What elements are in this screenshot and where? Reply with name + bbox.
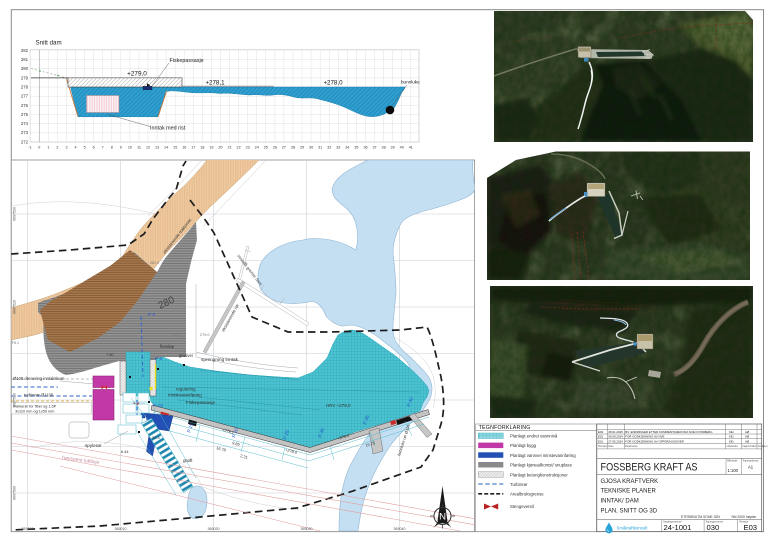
svg-text:NN 2000 høyder: NN 2000 høyder bbox=[732, 515, 758, 519]
svg-text:8: 8 bbox=[111, 146, 113, 150]
svg-text:31: 31 bbox=[318, 146, 322, 150]
svg-text:40: 40 bbox=[400, 146, 404, 150]
svg-text:Godkjent: Godkjent bbox=[758, 445, 768, 448]
svg-text:3: 3 bbox=[65, 146, 67, 150]
svg-text:A1: A1 bbox=[748, 465, 754, 470]
svg-text:Ø100 drenering inntakskum: Ø100 drenering inntakskum bbox=[13, 376, 65, 381]
svg-text:spylerør: spylerør bbox=[85, 443, 102, 448]
svg-text:INNTAK/ DAM: INNTAK/ DAM bbox=[601, 499, 639, 505]
svg-text:030: 030 bbox=[707, 523, 720, 532]
svg-text:F8,1: F8,1 bbox=[12, 341, 19, 345]
svg-text:17: 17 bbox=[191, 146, 195, 150]
svg-text:4: 4 bbox=[74, 146, 76, 150]
svg-text:281.9: 281.9 bbox=[150, 261, 159, 265]
svg-text:6697520: 6697520 bbox=[13, 300, 17, 314]
svg-text:14: 14 bbox=[164, 146, 168, 150]
svg-text:15: 15 bbox=[173, 146, 177, 150]
svg-text:grøft: grøft bbox=[183, 458, 193, 463]
svg-text:281: 281 bbox=[21, 57, 29, 62]
svg-text:HRV +278,0: HRV +278,0 bbox=[326, 403, 351, 408]
svg-text:Beskrivelse: Beskrivelse bbox=[625, 445, 638, 448]
svg-text:21: 21 bbox=[228, 146, 232, 150]
svg-text:12: 12 bbox=[146, 146, 150, 150]
svg-text:274: 274 bbox=[21, 121, 29, 126]
svg-text:275: 275 bbox=[21, 112, 29, 117]
svg-text:39: 39 bbox=[391, 146, 395, 150]
svg-text:35: 35 bbox=[354, 146, 358, 150]
svg-text:+278,0: +278,0 bbox=[323, 80, 343, 87]
svg-text:5: 5 bbox=[84, 146, 86, 150]
svg-text:37: 37 bbox=[372, 146, 376, 150]
svg-text:282: 282 bbox=[21, 48, 29, 53]
svg-text:276: 276 bbox=[21, 103, 29, 108]
svg-text:6697500: 6697500 bbox=[13, 486, 17, 500]
svg-text:Utarbeidet: Utarbeidet bbox=[727, 445, 738, 448]
svg-text:34: 34 bbox=[345, 146, 349, 150]
svg-text:KEi: KEi bbox=[729, 435, 734, 439]
svg-text:Tegningsformat: Tegningsformat bbox=[743, 460, 759, 463]
svg-text:E02: E02 bbox=[598, 435, 604, 439]
svg-text:E03: E03 bbox=[598, 430, 604, 434]
svg-text:-1: -1 bbox=[29, 146, 32, 150]
svg-text:38: 38 bbox=[382, 146, 386, 150]
svg-text:N: N bbox=[439, 512, 446, 523]
svg-text:23: 23 bbox=[246, 146, 250, 150]
svg-text:278: 278 bbox=[21, 85, 29, 90]
svg-text:Snitt dam: Snitt dam bbox=[36, 40, 62, 47]
svg-text:279.0: 279.0 bbox=[200, 333, 210, 337]
svg-text:9: 9 bbox=[120, 146, 122, 150]
svg-text:26: 26 bbox=[273, 146, 277, 150]
svg-text:Planlagt vannvei minstevannfør: Planlagt vannvei minstevannføring bbox=[510, 453, 576, 458]
svg-text:grusvei: grusvei bbox=[179, 353, 193, 358]
svg-text:06.09.2024: 06.09.2024 bbox=[608, 435, 623, 439]
svg-text:24-1001: 24-1001 bbox=[664, 523, 692, 532]
svg-text:18: 18 bbox=[200, 146, 204, 150]
svg-text:Turbinrør: Turbinrør bbox=[510, 482, 528, 487]
svg-text:E03: E03 bbox=[744, 523, 758, 532]
svg-text:Småkraftkonsult: Småkraftkonsult bbox=[617, 525, 649, 530]
svg-text:369010: 369010 bbox=[115, 527, 127, 531]
svg-text:33: 33 bbox=[336, 146, 340, 150]
svg-text:1: 1 bbox=[47, 146, 49, 150]
svg-text:6: 6 bbox=[93, 146, 95, 150]
svg-text:369020: 369020 bbox=[208, 527, 220, 531]
svg-text:trekkerør for fiber og 1,5P: trekkerør for fiber og 1,5P bbox=[13, 405, 57, 409]
svg-text:3x110 mm og 1x50 mm: 3x110 mm og 1x50 mm bbox=[15, 410, 54, 414]
svg-text:280: 280 bbox=[21, 66, 29, 71]
svg-text:E01: E01 bbox=[598, 439, 604, 443]
svg-text:TEKNISKE PLANER: TEKNISKE PLANER bbox=[601, 489, 657, 495]
svg-text:Planlagt betongkonstruksjoner: Planlagt betongkonstruksjoner bbox=[510, 472, 568, 477]
svg-text:27: 27 bbox=[282, 146, 286, 150]
svg-text:29: 29 bbox=[300, 146, 304, 150]
svg-text:minstevannføring: minstevannføring bbox=[168, 393, 202, 398]
svg-text:regulering: regulering bbox=[176, 387, 196, 392]
svg-text:28: 28 bbox=[291, 146, 295, 150]
svg-text:BV: ENDRINGER ETTER KOMMENTARE: BV: ENDRINGER ETTER KOMMENTARER FRA NVE/… bbox=[625, 430, 713, 434]
svg-text:1:100: 1:100 bbox=[728, 468, 739, 473]
svg-text:369040: 369040 bbox=[394, 527, 406, 531]
svg-text:FOR GODKJENNING AV NVE: FOR GODKJENNING AV NVE bbox=[625, 435, 664, 439]
svg-text:279.5: 279.5 bbox=[172, 334, 182, 338]
svg-text:Dato: Dato bbox=[608, 445, 614, 448]
svg-text:Fagkontrollert: Fagkontrollert bbox=[742, 445, 757, 448]
svg-text:P 10: P 10 bbox=[153, 403, 163, 409]
svg-text:6697530: 6697530 bbox=[13, 207, 17, 221]
svg-text:Fiskepassasje: Fiskepassasje bbox=[186, 400, 216, 405]
svg-text:27.05.2024: 27.05.2024 bbox=[608, 439, 623, 443]
svg-text:7: 7 bbox=[102, 146, 104, 150]
svg-text:Revisjon: Revisjon bbox=[598, 445, 608, 448]
svg-text:ETRS89/UTM SONE 32N: ETRS89/UTM SONE 32N bbox=[681, 515, 720, 519]
svg-text:KEi: KEi bbox=[729, 439, 734, 443]
svg-text:29.3: 29.3 bbox=[152, 435, 160, 440]
svg-text:Stengeventil: Stengeventil bbox=[510, 504, 534, 509]
svg-text:32: 32 bbox=[327, 146, 331, 150]
svg-text:273: 273 bbox=[21, 130, 29, 135]
svg-text:P 0: P 0 bbox=[148, 312, 155, 318]
svg-text:08.01.2025: 08.01.2025 bbox=[608, 430, 623, 434]
svg-text:13: 13 bbox=[155, 146, 159, 150]
svg-text:11: 11 bbox=[137, 146, 141, 150]
svg-text:sprengning inntak: sprengning inntak bbox=[201, 357, 239, 362]
svg-text:6697510: 6697510 bbox=[13, 393, 17, 407]
svg-text:24: 24 bbox=[255, 146, 259, 150]
svg-text:7.50: 7.50 bbox=[106, 352, 114, 357]
svg-text:25: 25 bbox=[264, 146, 268, 150]
svg-text:FOR GODKJENNING AV OPPDRAGSGIV: FOR GODKJENNING AV OPPDRAGSGIVER bbox=[625, 439, 684, 443]
svg-text:16: 16 bbox=[182, 146, 186, 150]
svg-text:369030: 369030 bbox=[301, 527, 313, 531]
svg-text:10: 10 bbox=[128, 146, 132, 150]
svg-text:6.44: 6.44 bbox=[121, 449, 129, 454]
svg-text:277: 277 bbox=[21, 94, 29, 99]
svg-text:22: 22 bbox=[237, 146, 241, 150]
svg-text:279: 279 bbox=[21, 75, 29, 80]
svg-text:Arealbruksgrense: Arealbruksgrense bbox=[510, 492, 544, 497]
svg-text:0: 0 bbox=[38, 146, 40, 150]
svg-text:flomløp: flomløp bbox=[160, 344, 175, 349]
svg-text:19: 19 bbox=[209, 146, 213, 150]
svg-text:P 5: P 5 bbox=[155, 356, 162, 362]
svg-text:30: 30 bbox=[309, 146, 313, 150]
svg-text:Planlagt kjøreadkomst/ snuplas: Planlagt kjøreadkomst/ snuplass bbox=[510, 463, 572, 468]
svg-text:Planlagt bygg: Planlagt bygg bbox=[510, 443, 537, 448]
svg-text:FOSSBERG KRAFT AS: FOSSBERG KRAFT AS bbox=[601, 462, 698, 474]
svg-text:PLAN, SNITT OG 3D: PLAN, SNITT OG 3D bbox=[601, 508, 658, 514]
svg-text:bunnluke: bunnluke bbox=[401, 80, 420, 85]
svg-text:Planlagt endret vannnivå: Planlagt endret vannnivå bbox=[510, 434, 558, 439]
svg-text:Målestokk: Målestokk bbox=[727, 460, 738, 463]
svg-text:+278,1: +278,1 bbox=[205, 80, 225, 87]
svg-text:369000: 369000 bbox=[22, 527, 34, 531]
svg-text:+279,0: +279,0 bbox=[127, 71, 147, 78]
svg-text:36: 36 bbox=[363, 146, 367, 150]
svg-text:20: 20 bbox=[218, 146, 222, 150]
svg-text:2: 2 bbox=[56, 146, 58, 150]
svg-text:GJOSA KRAFTVERK: GJOSA KRAFTVERK bbox=[601, 479, 659, 485]
svg-text:turbinrør Ø1100: turbinrør Ø1100 bbox=[24, 393, 54, 398]
svg-text:Inntak med rist: Inntak med rist bbox=[150, 126, 186, 132]
svg-text:TEGNFORKLARING: TEGNFORKLARING bbox=[479, 425, 531, 431]
svg-text:KEi: KEi bbox=[729, 430, 734, 434]
svg-text:Fiskepassasje: Fiskepassasje bbox=[170, 58, 204, 64]
svg-text:272: 272 bbox=[21, 139, 29, 144]
svg-text:41: 41 bbox=[409, 146, 413, 150]
